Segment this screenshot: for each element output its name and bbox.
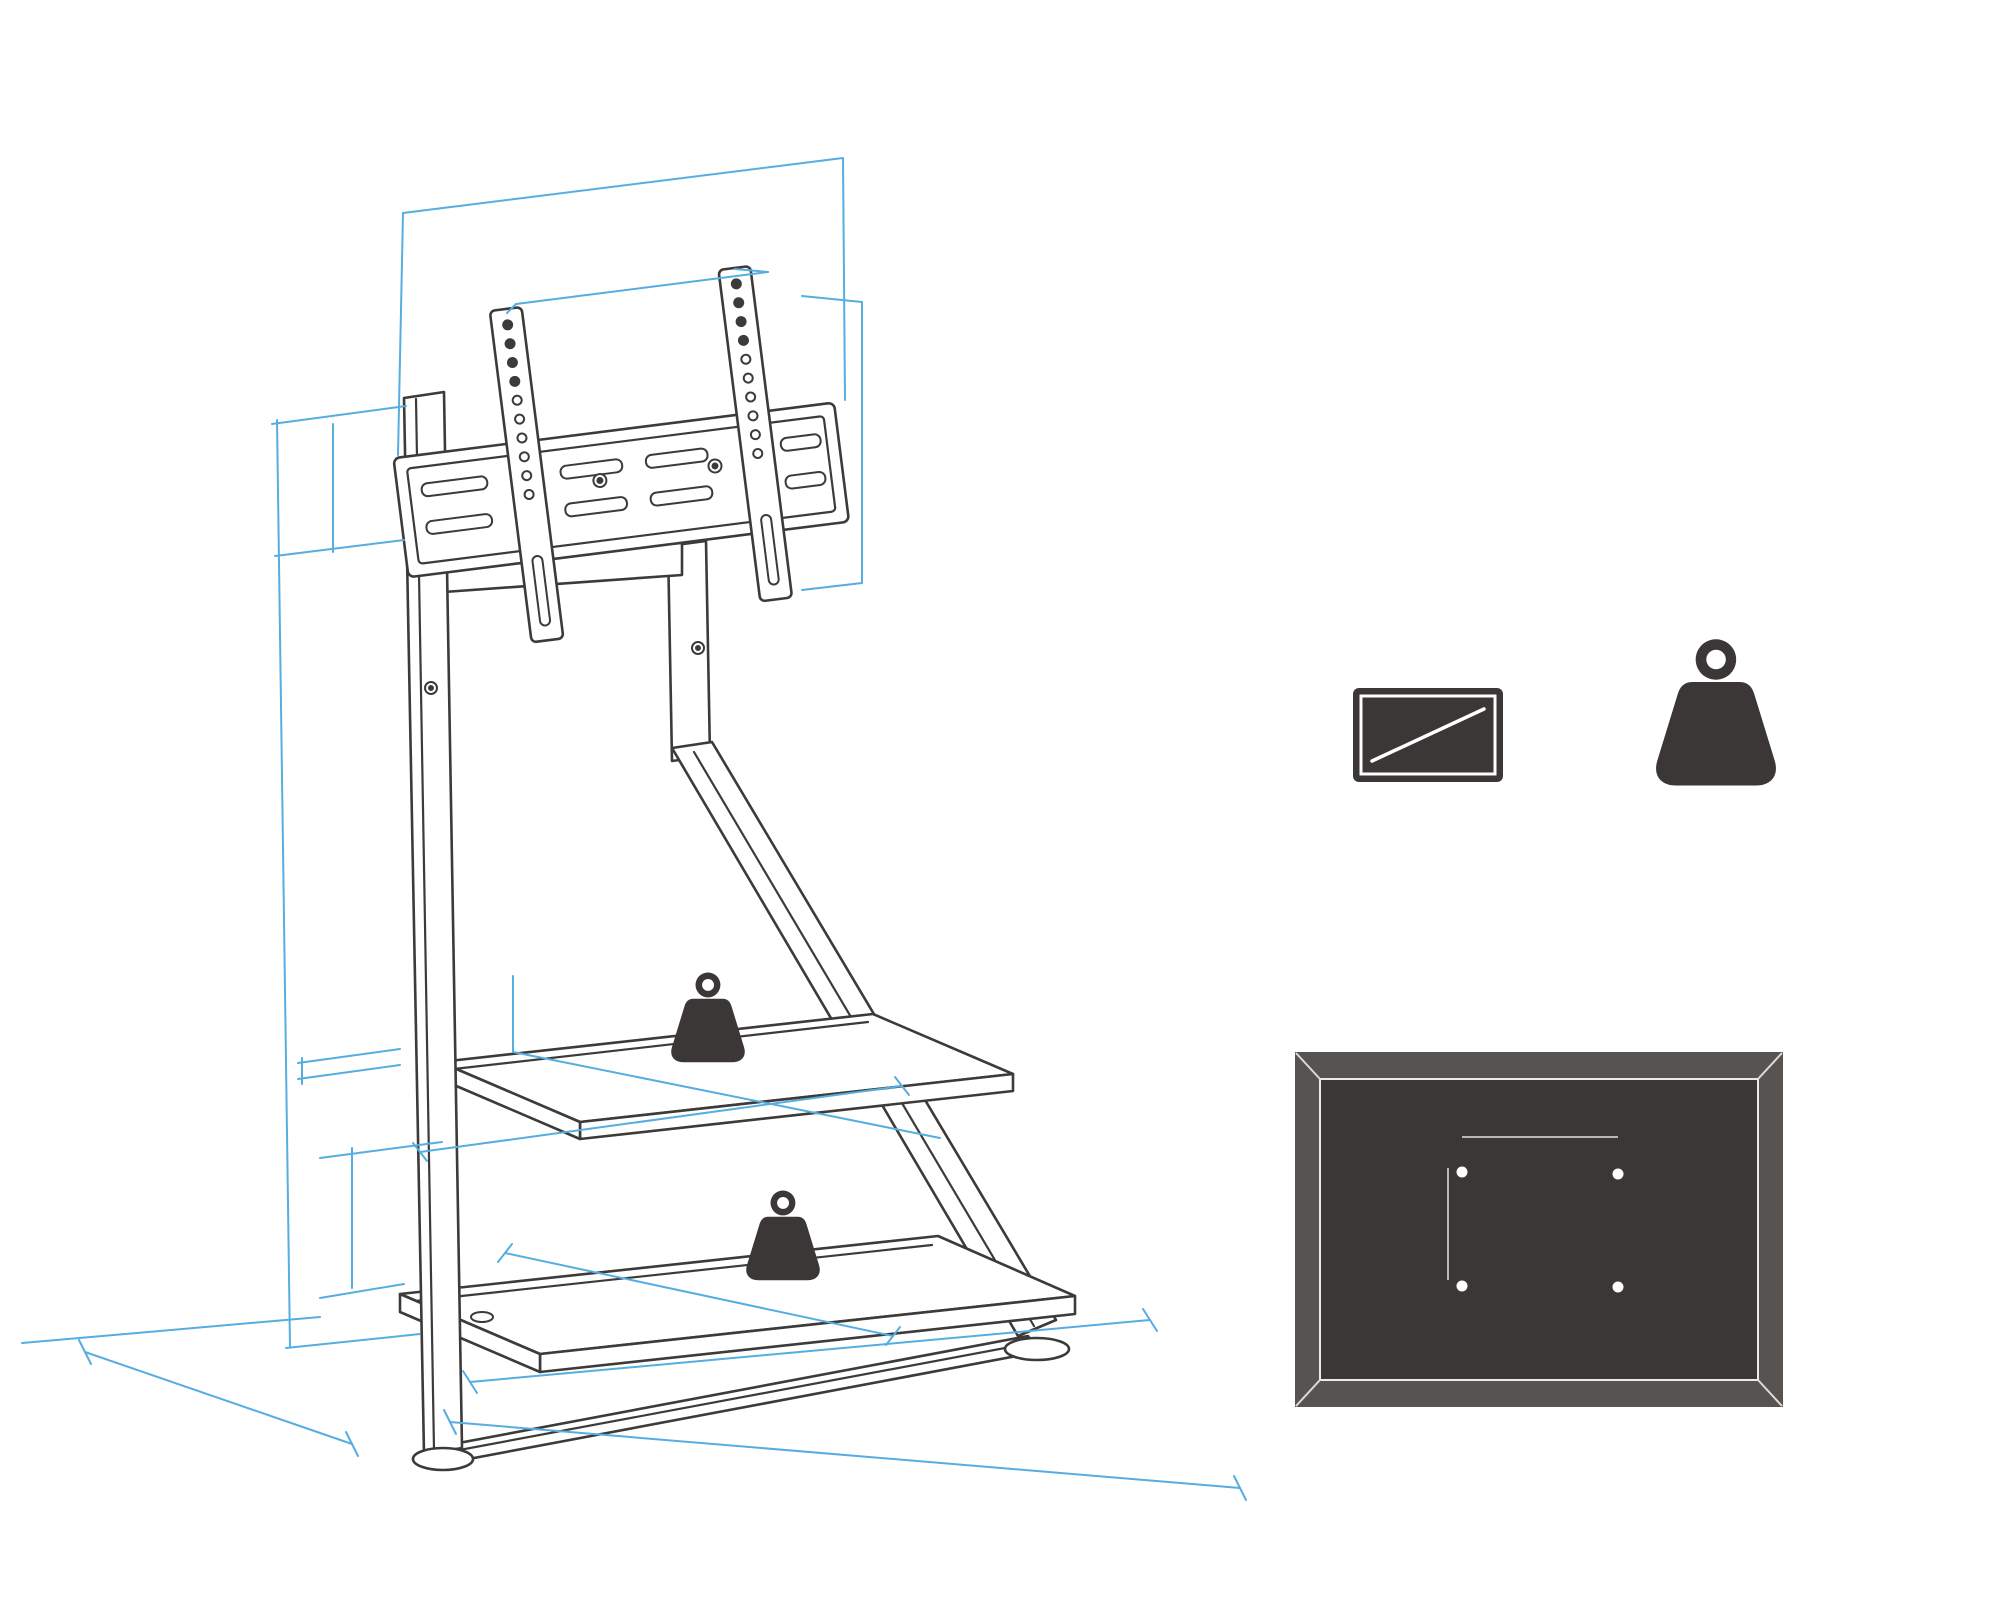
panel-width-underline — [1462, 1136, 1618, 1138]
vesa-hole — [1457, 1167, 1468, 1178]
tv-back-panel — [1295, 1052, 1783, 1407]
bottom-shelf-load-badge — [737, 1189, 829, 1296]
panel-height-line — [1447, 1168, 1449, 1280]
vesa-hole — [1613, 1169, 1624, 1180]
vesa-hole — [1457, 1281, 1468, 1292]
weight-icon — [1641, 637, 1791, 811]
weight-icon — [662, 971, 754, 1078]
rear-leg — [668, 541, 1056, 1336]
mid-shelf-load-badge — [662, 971, 754, 1078]
product-dimension-diagram — [0, 0, 2000, 1600]
vesa-hole — [1613, 1282, 1624, 1293]
capacity-badge — [1641, 637, 1791, 811]
panel-bevel-lines — [1295, 1052, 1783, 1407]
weight-icon — [737, 1189, 829, 1296]
